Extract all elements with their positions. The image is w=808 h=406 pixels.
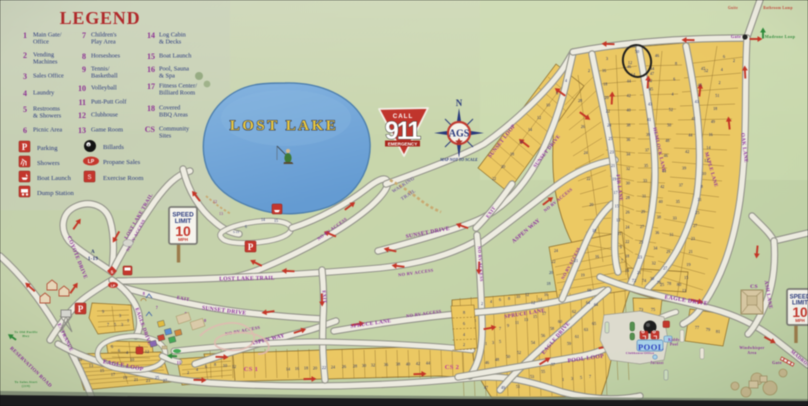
svg-text:Bathroom Lamp: Bathroom Lamp <box>763 6 793 10</box>
svg-text:Guite: Guite <box>728 6 738 10</box>
